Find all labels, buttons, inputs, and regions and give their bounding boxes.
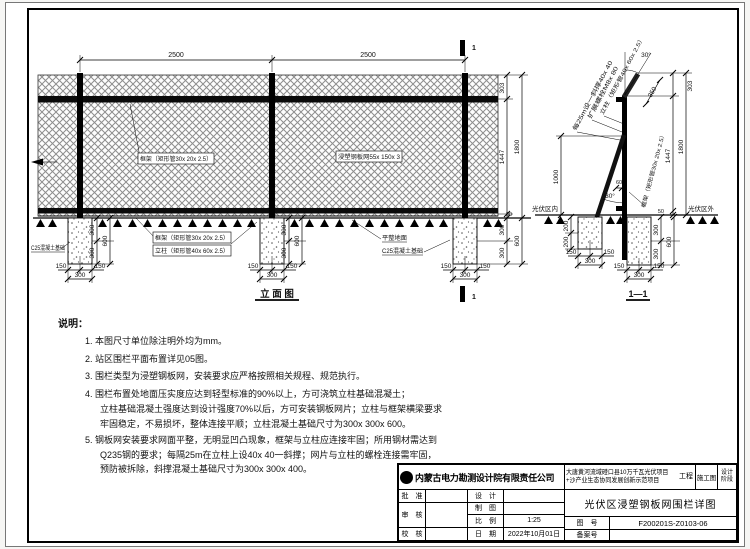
dim-found-half-w: 150	[604, 249, 615, 256]
record-value	[610, 530, 736, 540]
dim-brace-offset: 60	[616, 180, 622, 186]
dim-found-half-d: 300	[499, 224, 506, 235]
dim-total-h: 1800	[514, 139, 521, 154]
review-value	[426, 503, 468, 528]
rail-section-bottom	[616, 206, 622, 211]
label-level-ground: 平整地面	[382, 234, 407, 242]
dim-found-half-w: 150	[480, 263, 491, 270]
check-label: 校 核	[399, 528, 426, 541]
dim-mesh-h: 1447	[665, 148, 672, 163]
section-post	[622, 96, 627, 260]
project-cell: 大唐黄河流域磴口县10万千瓦光伏项目 +沙产业生态协同发展创新示范项目 工程	[565, 465, 695, 489]
dim-found-d: 600	[666, 236, 673, 247]
company-name: 内蒙古电力勘测设计院有限责任公司	[415, 471, 554, 484]
dim-found-w: 300	[585, 258, 596, 265]
approve-value	[426, 490, 468, 503]
label-post: 立柱（矩形管40x 60x 2.5）	[155, 247, 229, 255]
top-rail	[38, 96, 498, 103]
review-label: 审 核	[399, 503, 426, 528]
label-mesh: 浸塑钢板网55x 150x 3	[338, 153, 401, 161]
draft-value	[504, 503, 564, 516]
label-frame-top: 框架（矩形管30x 20x 2.5）	[140, 155, 212, 163]
dim-found-half-w: 150	[287, 263, 298, 270]
dim-arm-angle: 30°	[641, 51, 651, 59]
dim-found-half-w: 150	[654, 263, 665, 270]
dim-found-half-d: 300	[499, 247, 506, 258]
design-label: 设 计	[468, 490, 504, 503]
dim-found-half-d: 300	[89, 247, 96, 258]
dim-mesh-h: 1447	[499, 149, 506, 164]
dim-found-half-d: 300	[653, 224, 660, 235]
break-arrow-icon	[31, 159, 43, 166]
dim-found-w: 300	[267, 272, 278, 279]
dim-found-half-w: 150	[56, 263, 67, 270]
dim-found-half-d: 300	[281, 247, 288, 258]
label-outside: 光伏区外	[688, 204, 715, 213]
drawing-title: 光伏区浸塑钢板网围栏详图	[565, 490, 736, 517]
label-inside: 光伏区内	[532, 204, 558, 213]
elevation-view: 2500 2500 1 1 303 1447 1800 50 300 300 6…	[31, 40, 531, 302]
section-cut-top	[460, 40, 465, 56]
project-suffix-label: 工程	[678, 473, 694, 481]
record-label: 备案号	[565, 530, 610, 540]
bottom-rail	[38, 208, 498, 214]
dim-brace-h: 1000	[553, 169, 560, 184]
dim-found-d: 600	[102, 235, 109, 246]
dim-ground-gap: 50	[658, 209, 664, 215]
title-block-left: 内蒙古电力勘测设计院有限责任公司 批 准 设 计 审 核 制 图 比 例 1:2…	[399, 465, 565, 540]
record-number-row: 备案号	[565, 530, 736, 540]
scale-value: 1:25	[504, 515, 564, 528]
dim-ground-gap: 50	[506, 212, 512, 218]
dim-found-w: 300	[460, 272, 471, 279]
dim-found-half-w: 150	[614, 263, 625, 270]
company-row: 内蒙古电力勘测设计院有限责任公司	[399, 465, 564, 490]
section-view: 30° 350 303 1447 1800 1000 50 60 30° 200…	[532, 34, 719, 300]
rail-section-top	[616, 97, 622, 102]
stage-label: 设计 阶段	[717, 465, 736, 489]
dim-found-half-w: 150	[441, 263, 452, 270]
elevation-title: 立 面 图	[260, 288, 294, 300]
design-value	[504, 490, 564, 503]
dim-span-1: 2500	[168, 52, 184, 59]
figno-value: F200201S-Z0103-06	[610, 517, 736, 529]
title-block: 内蒙古电力勘测设计院有限责任公司 批 准 设 计 审 核 制 图 比 例 1:2…	[397, 463, 738, 542]
label-section-frame: 框架（矩形管30x 20x 2.5）	[639, 131, 667, 208]
section-title: 1—1	[628, 289, 647, 299]
project-name-line2: +沙产业生态协同发展创新示范项目	[566, 477, 669, 485]
dim-brace-found-half-d: 200	[563, 236, 570, 247]
post-foundation	[627, 217, 651, 265]
date-label: 日 期	[468, 528, 504, 541]
dim-found-half-w: 150	[248, 263, 259, 270]
signature-grid: 批 准 设 计 审 核 制 图 比 例 1:25 校 核 日 期 2022年10…	[399, 490, 564, 540]
project-row: 大唐黄河流域磴口县10万千瓦光伏项目 +沙产业生态协同发展创新示范项目 工程 施…	[565, 465, 736, 490]
dim-found-half-d: 300	[653, 248, 660, 259]
title-block-right: 大唐黄河流域磴口县10万千瓦光伏项目 +沙产业生态协同发展创新示范项目 工程 施…	[565, 465, 736, 540]
dim-found-half-w: 150	[95, 263, 106, 270]
project-name-line1: 大唐黄河流域磴口县10万千瓦光伏项目	[566, 469, 669, 477]
company-logo-icon	[400, 471, 413, 484]
stage-value: 施工图	[695, 465, 717, 489]
dim-found-w: 300	[75, 272, 86, 279]
figure-number-row: 图 号 F200201S-Z0103-06	[565, 517, 736, 530]
approve-label: 批 准	[399, 490, 426, 503]
dim-brace-found-half-d: 200	[563, 220, 570, 231]
dim-total-h: 1800	[678, 139, 685, 154]
date-value: 2022年10月01日	[504, 528, 564, 541]
dim-span-2: 2500	[360, 52, 376, 59]
section-mark-top: 1	[472, 45, 476, 52]
section-cut-bottom	[460, 286, 465, 302]
draft-label: 制 图	[468, 503, 504, 516]
dim-top-h: 303	[499, 82, 506, 93]
dim-found-half-d: 300	[281, 224, 288, 235]
label-frame-bottom: 框架（矩形管30x 20x 2.5）	[155, 234, 229, 242]
dim-arm-len: 350	[647, 85, 659, 98]
dim-found-half-w: 150	[566, 249, 577, 256]
dim-found-half-d: 300	[89, 224, 96, 235]
dim-found-w: 300	[634, 272, 645, 279]
dim-brace-angle: 30°	[605, 192, 615, 200]
figno-label: 图 号	[565, 517, 610, 529]
check-value	[426, 528, 468, 541]
scale-label: 比 例	[468, 515, 504, 528]
label-c25-right: C25混凝土基础	[382, 247, 423, 255]
section-mark-bottom: 1	[472, 294, 476, 301]
dim-found-d: 600	[514, 235, 521, 246]
dim-found-d: 600	[294, 235, 301, 246]
label-c25-left: C25混凝土基础	[31, 244, 65, 252]
dim-top-h: 303	[687, 80, 694, 91]
